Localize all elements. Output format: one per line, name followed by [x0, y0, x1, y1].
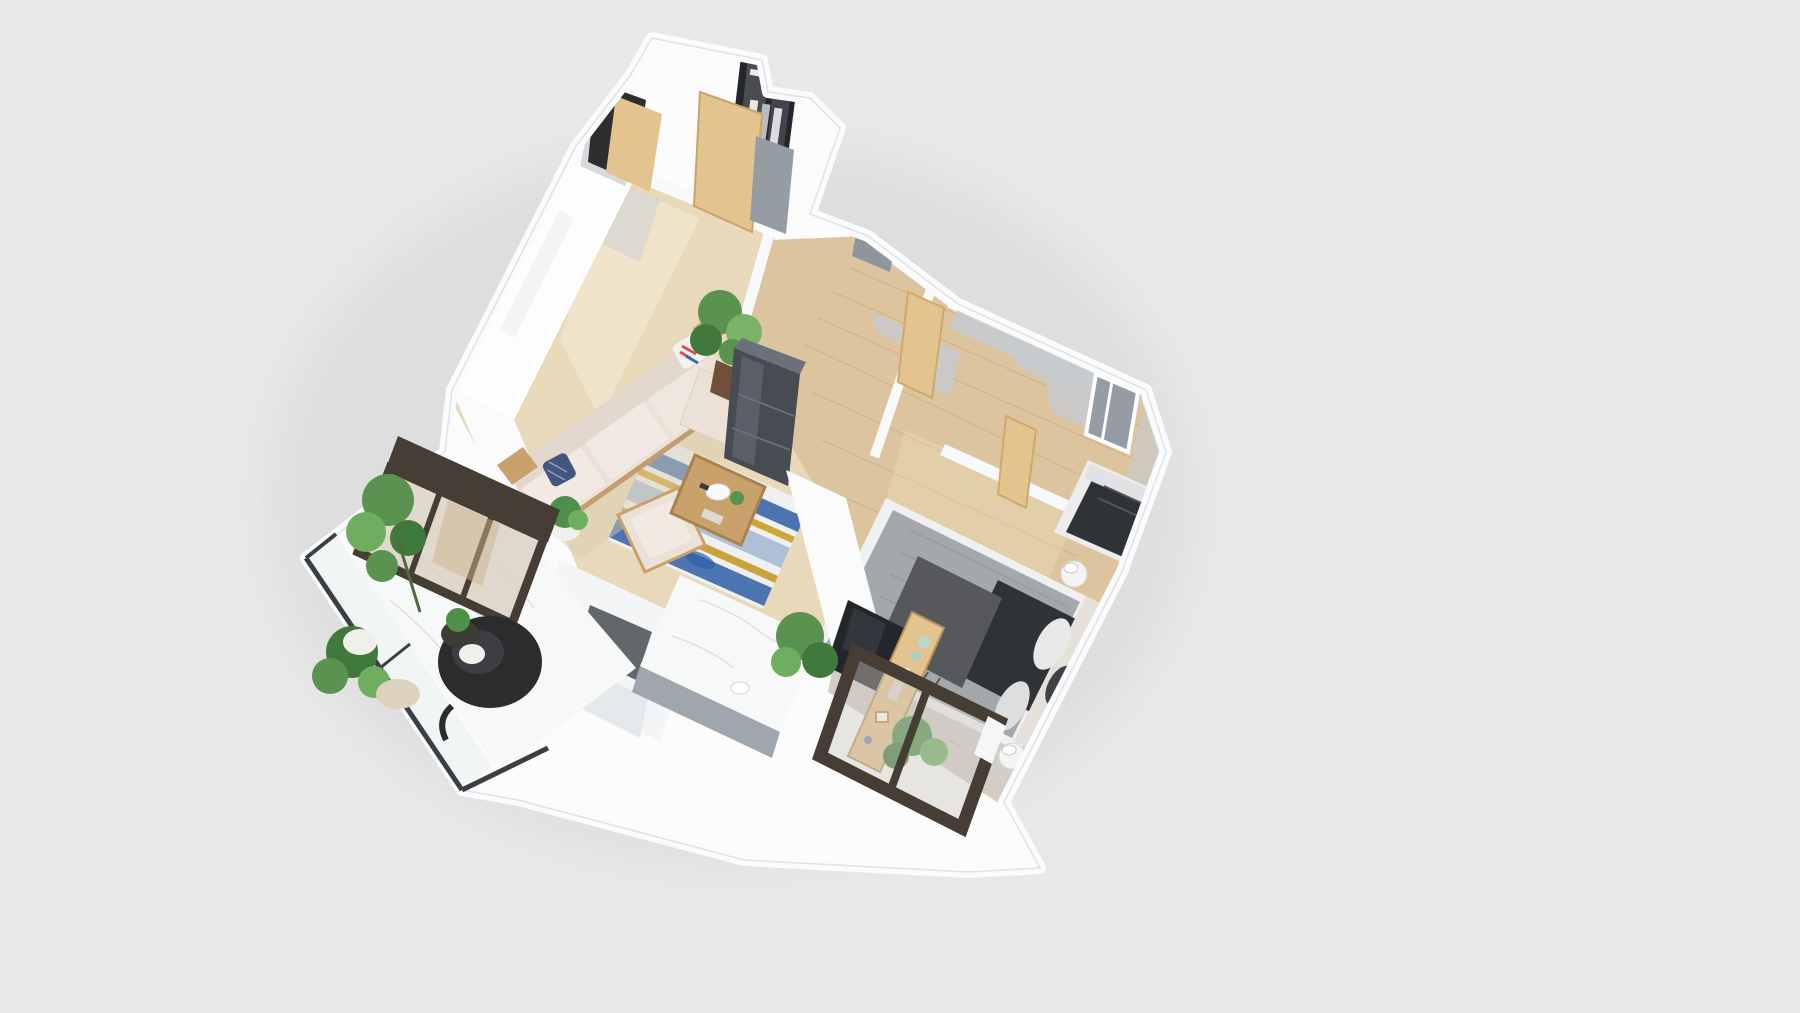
lamp-2 — [1002, 745, 1016, 755]
celadon-vase-2 — [911, 651, 921, 661]
small-foliage-2 — [568, 510, 588, 530]
tall-plant-foliage-4 — [366, 550, 398, 582]
nightstand-1 — [1061, 561, 1087, 587]
tall-plant-foliage-2 — [346, 512, 386, 552]
table-plant — [730, 491, 744, 505]
tall-plant-foliage-3 — [390, 520, 426, 556]
bp1-foliage-2 — [802, 642, 838, 678]
white-pot — [343, 629, 377, 655]
white-tray — [706, 484, 730, 500]
celadon-vase-1 — [918, 636, 930, 648]
bp1-foliage-3 — [771, 647, 801, 677]
foliage-3 — [690, 324, 722, 356]
island-bowl — [731, 682, 749, 694]
white-pot-2 — [459, 644, 485, 664]
lamp-1 — [1064, 563, 1078, 573]
floorplan-render-canvas — [0, 0, 1800, 1013]
bowl-plant — [446, 608, 470, 632]
beige-pot — [376, 679, 420, 709]
monstera-foliage-2 — [312, 658, 348, 694]
screenshot-root — [0, 0, 1800, 1013]
